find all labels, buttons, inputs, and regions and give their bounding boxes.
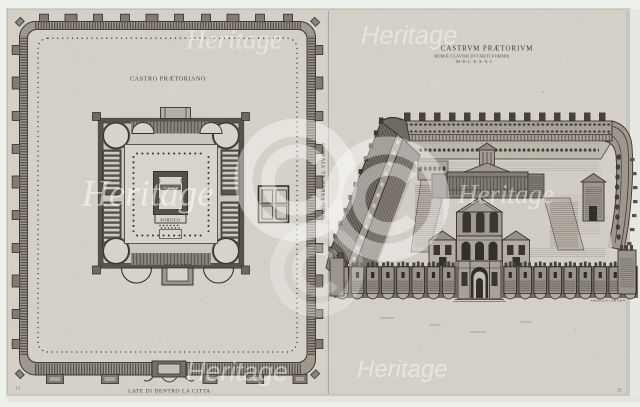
svg-text:Heritage: Heritage <box>457 179 554 209</box>
svg-text:Heritage: Heritage <box>357 356 448 383</box>
svg-text:Heritage: Heritage <box>185 25 282 55</box>
svg-text:M·D·L·X·X·X·I·: M·D·L·X·X·X·I· <box>456 59 494 64</box>
svg-text:AMBROSII BRAMB: AMBROSII BRAMB <box>591 299 626 303</box>
svg-text:13: 13 <box>15 386 20 391</box>
svg-text:PORTICO: PORTICO <box>160 217 180 222</box>
svg-text:LATE DI DENTRO LA CITTA·: LATE DI DENTRO LA CITTA· <box>128 389 213 395</box>
svg-text:31: 31 <box>617 389 622 394</box>
svg-text:ROMÆ CLAVDII DVCHETI FORMIS: ROMÆ CLAVDII DVCHETI FORMIS <box>434 53 510 58</box>
svg-text:CASTRO PRÆTORIANO: CASTRO PRÆTORIANO <box>130 76 206 83</box>
svg-text:Heritage: Heritage <box>361 22 457 50</box>
svg-text:Heritage: Heritage <box>186 357 288 387</box>
svg-text:Heritage: Heritage <box>81 174 214 215</box>
